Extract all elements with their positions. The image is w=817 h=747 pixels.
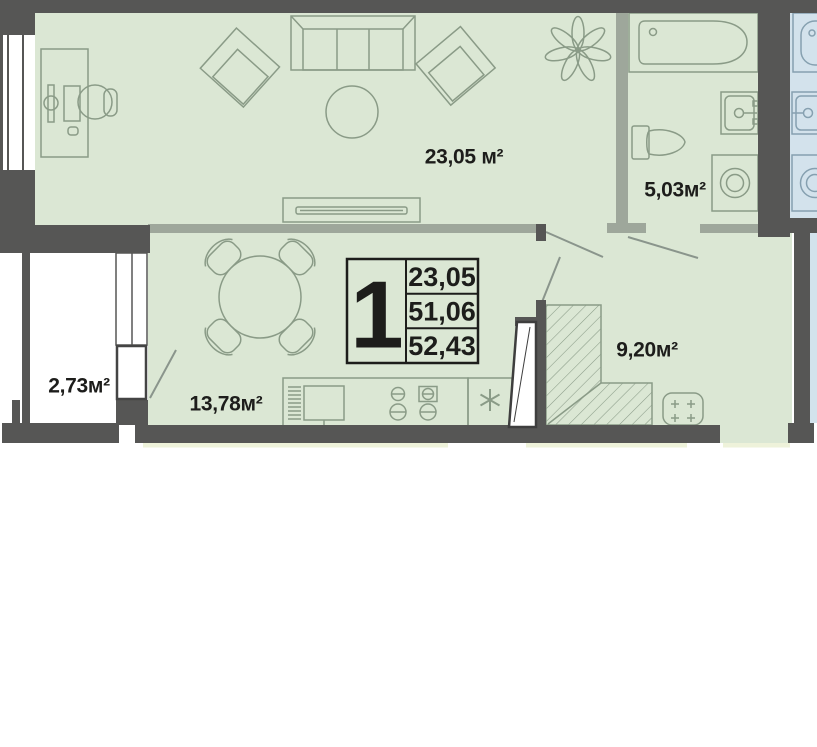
balcony-floor xyxy=(30,253,116,425)
summary-row-total-area: 52,43 xyxy=(408,331,476,361)
neighbor-bottom-wall xyxy=(783,218,817,233)
rooms-count: 1 xyxy=(350,262,403,369)
balcony-kitchen-pier xyxy=(116,400,148,425)
neighbor-strip xyxy=(810,233,817,423)
kitchen-door-opening xyxy=(536,241,546,300)
bathroom-bottom-partition xyxy=(700,224,758,233)
top-left-pier xyxy=(0,0,35,35)
living-balcony-wall xyxy=(28,225,150,253)
hallway-area-label: 9,20м² xyxy=(616,339,678,362)
window-mullion xyxy=(7,35,9,170)
balcony-wall-stub xyxy=(12,400,20,423)
balcony-area-label: 2,73м² xyxy=(48,375,110,398)
floorplan-svg: 23,05 м² 5,03м² 2,73м² 13,78м² 9,20м² 1 … xyxy=(0,0,817,747)
balcony-bottom-wall xyxy=(2,423,119,443)
kitchen-area-label: 13,78м² xyxy=(190,393,263,416)
summary-row-apartment-area: 51,06 xyxy=(408,297,476,327)
balcony-door-leaf xyxy=(117,346,146,399)
living-room-area-label: 23,05 м² xyxy=(425,146,504,169)
partition-end-stub xyxy=(536,224,546,241)
partition-footing xyxy=(607,223,646,233)
floor-strip xyxy=(723,443,790,448)
floor-strip xyxy=(526,443,687,448)
living-kitchen-partition xyxy=(148,224,536,233)
balcony-glazing xyxy=(116,253,147,345)
hallway-entry-floor xyxy=(720,425,794,443)
summary-row-living-area: 23,05 xyxy=(408,262,476,292)
right-wall-footing xyxy=(788,423,814,443)
balcony-left-wall xyxy=(22,253,30,425)
dining-table xyxy=(219,256,301,338)
kitchen-door-jamb xyxy=(536,300,546,425)
summary-values: 1 23,05 51,06 52,43 xyxy=(350,262,475,369)
top-wall xyxy=(0,0,817,13)
bathroom-area-label: 5,03м² xyxy=(644,179,706,202)
summary-box: 1 23,05 51,06 52,43 xyxy=(347,259,478,369)
floor-strip xyxy=(143,443,448,448)
bottom-wall xyxy=(135,425,720,443)
bathroom-door-opening xyxy=(645,224,700,233)
floorplan-page: 23,05 м² 5,03м² 2,73м² 13,78м² 9,20м² 1 … xyxy=(0,0,817,747)
living-door-opening xyxy=(546,224,608,233)
living-room-floor xyxy=(35,13,616,225)
bathroom-left-partition xyxy=(616,13,628,224)
window-mullion xyxy=(22,35,24,170)
bathroom-neighbor-wall xyxy=(758,0,790,237)
hallway-right-wall xyxy=(794,233,810,423)
